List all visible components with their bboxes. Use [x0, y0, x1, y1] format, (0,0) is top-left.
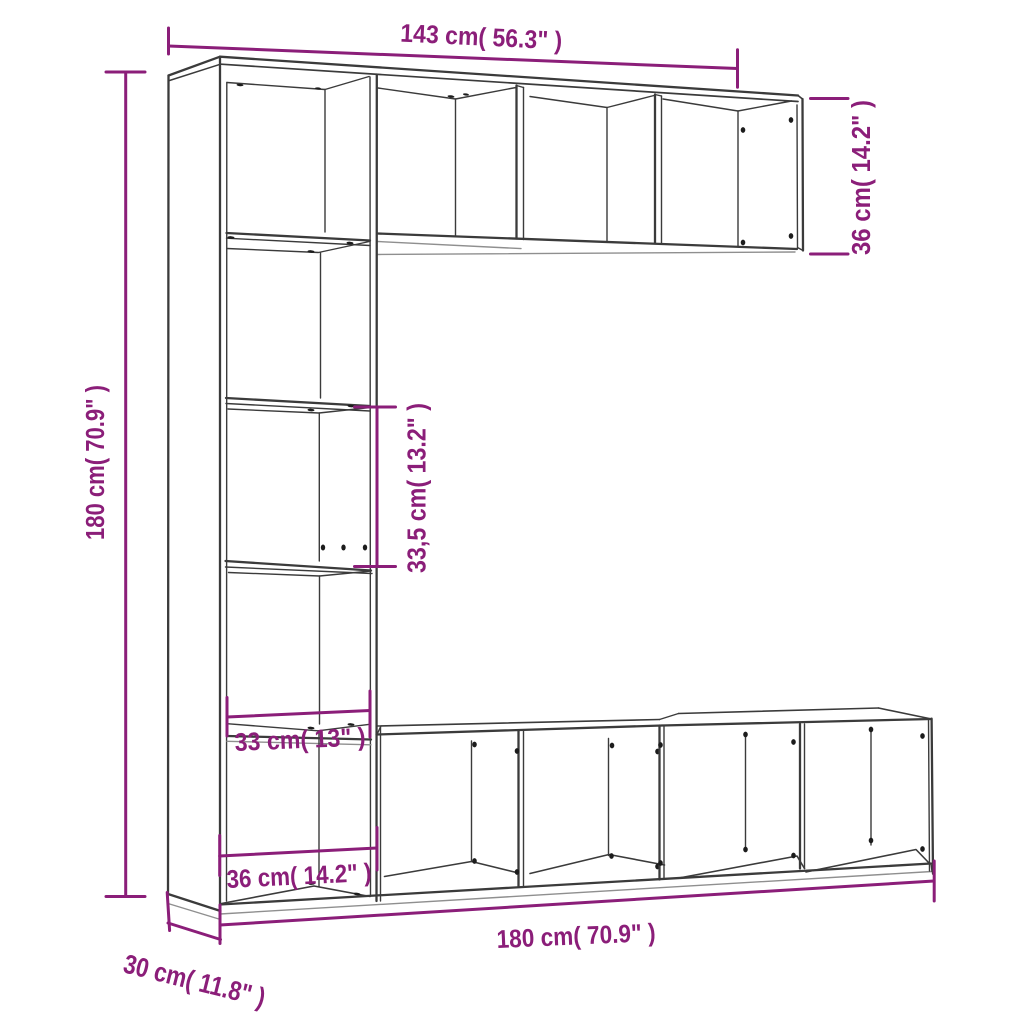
svg-text:33,5 cm( 13.2" ): 33,5 cm( 13.2" ) — [404, 403, 432, 573]
svg-text:180 cm( 70.9" ): 180 cm( 70.9" ) — [82, 385, 110, 540]
svg-text:36 cm( 14.2" ): 36 cm( 14.2" ) — [848, 100, 876, 255]
svg-text:33 cm( 13" ): 33 cm( 13" ) — [234, 723, 366, 757]
